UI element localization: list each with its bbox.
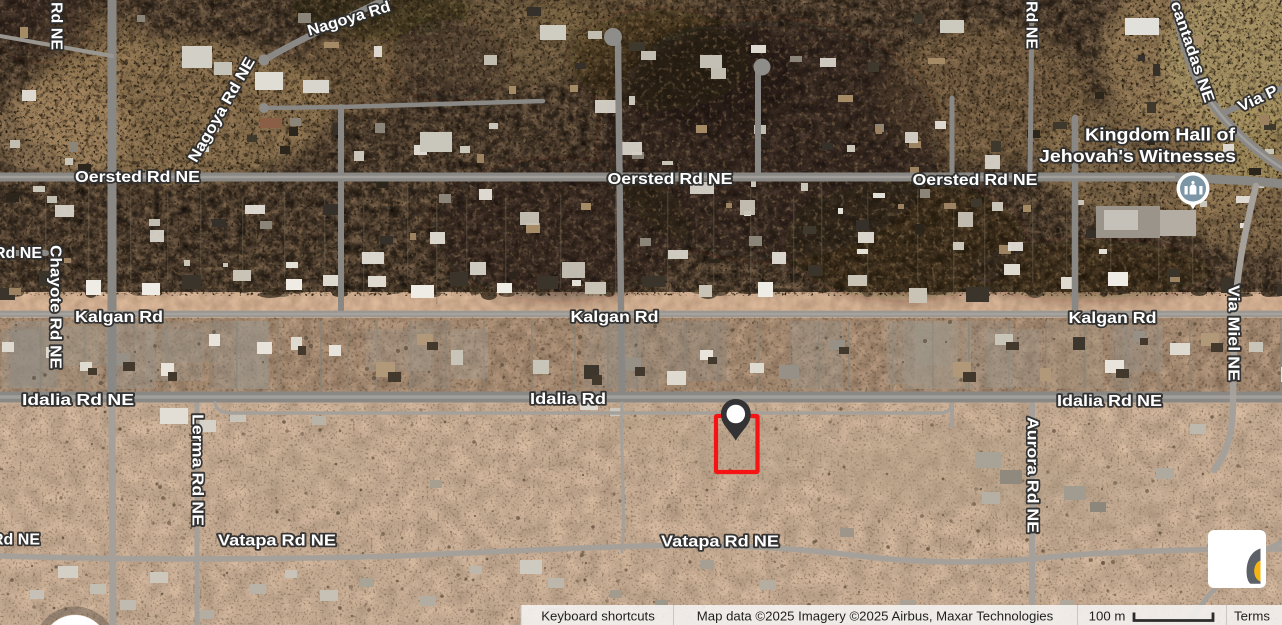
svg-text:Rd NE: Rd NE — [0, 245, 42, 262]
svg-text:Kingdom Hall of: Kingdom Hall of — [1085, 125, 1235, 145]
svg-text:Terms: Terms — [1234, 609, 1270, 624]
svg-text:Idalia Rd: Idalia Rd — [530, 391, 606, 408]
svg-text:Chayote Rd NE: Chayote Rd NE — [47, 245, 64, 369]
svg-text:Vatapa Rd NE: Vatapa Rd NE — [661, 534, 779, 551]
svg-text:Keyboard shortcuts: Keyboard shortcuts — [541, 609, 655, 624]
svg-text:Idalia Rd NE: Idalia Rd NE — [1057, 393, 1162, 410]
svg-text:Aurora Rd NE: Aurora Rd NE — [1024, 417, 1041, 533]
svg-text:Oersted Rd NE: Oersted Rd NE — [608, 171, 733, 188]
svg-text:Rd NE: Rd NE — [48, 2, 65, 50]
svg-text:Kalgan Rd: Kalgan Rd — [571, 309, 659, 326]
svg-text:Idalia Rd NE: Idalia Rd NE — [22, 392, 134, 409]
svg-text:Vatapa Rd NE: Vatapa Rd NE — [218, 533, 336, 550]
svg-text:Lerma Rd NE: Lerma Rd NE — [189, 414, 206, 526]
svg-text:Oersted Rd NE: Oersted Rd NE — [75, 169, 200, 186]
svg-text:Kalgan Rd: Kalgan Rd — [1069, 310, 1157, 327]
svg-text:100 m: 100 m — [1089, 609, 1126, 624]
svg-text:Oersted Rd NE: Oersted Rd NE — [913, 172, 1038, 189]
svg-text:Map data ©2025 Imagery ©2025 A: Map data ©2025 Imagery ©2025 Airbus, Max… — [697, 609, 1054, 624]
svg-text:Rd NE: Rd NE — [1023, 1, 1040, 49]
svg-text:Jehovah's Witnesses: Jehovah's Witnesses — [1039, 146, 1236, 166]
svg-text:Via Miel NE: Via Miel NE — [1225, 285, 1242, 381]
svg-text:Kalgan Rd: Kalgan Rd — [75, 309, 163, 326]
svg-text:Rd NE: Rd NE — [0, 532, 40, 549]
